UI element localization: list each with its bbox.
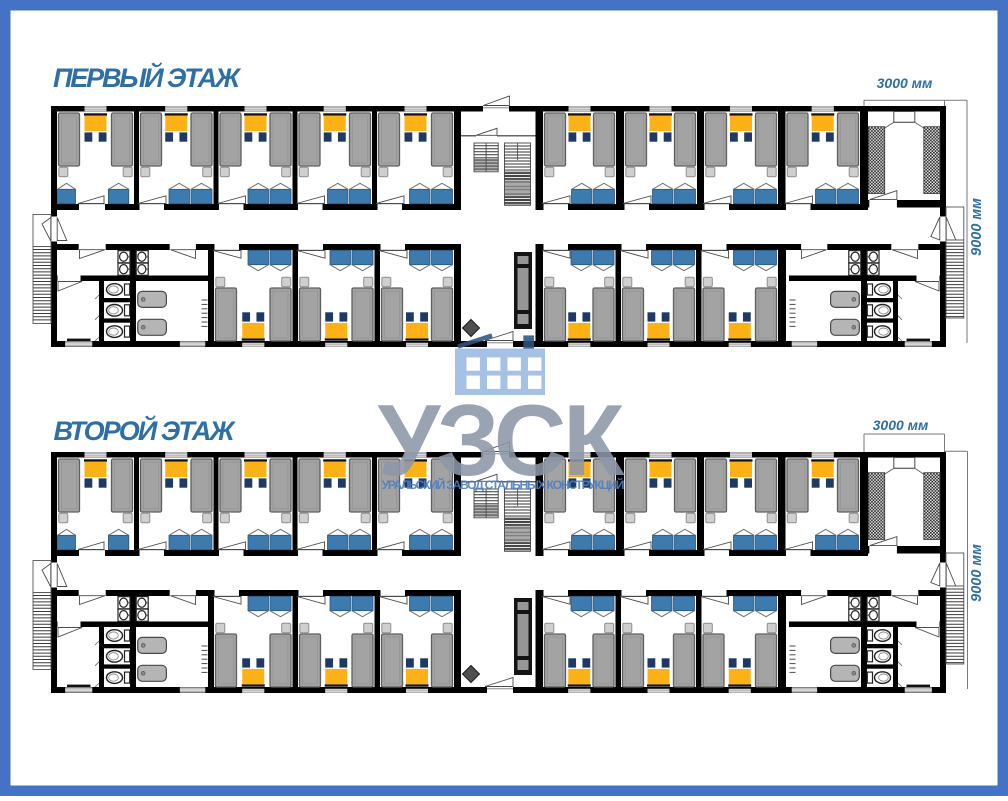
- svg-text:9000 мм: 9000 мм: [969, 198, 985, 256]
- svg-text:3000 мм: 3000 мм: [877, 75, 933, 91]
- svg-text:3000 мм: 3000 мм: [873, 417, 929, 433]
- svg-text:ВТОРОЙ ЭТАЖ: ВТОРОЙ ЭТАЖ: [54, 414, 237, 446]
- svg-text:ПЕРВЫЙ ЭТАЖ: ПЕРВЫЙ ЭТАЖ: [53, 61, 242, 93]
- svg-text:УРАЛЬСКИЙ ЗАВОД СТАЛЬНЫХ КОНСТ: УРАЛЬСКИЙ ЗАВОД СТАЛЬНЫХ КОНСТРУКЦИЙ: [382, 477, 625, 492]
- svg-text:9000 мм: 9000 мм: [969, 544, 985, 602]
